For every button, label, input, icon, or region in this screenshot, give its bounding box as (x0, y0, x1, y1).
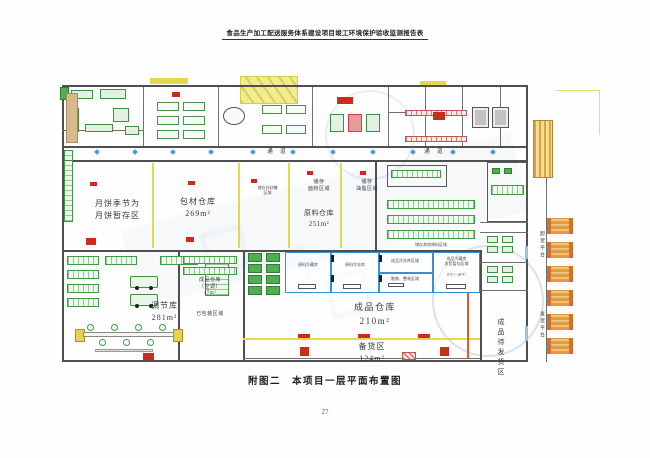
red-marker (337, 97, 353, 104)
report-header: 食品生产加工配送服务体系建设项目竣工环境保护验收监测报告表 (0, 22, 650, 40)
office-desk (286, 105, 306, 114)
wall (218, 87, 219, 146)
page-title: 食品生产加工配送服务体系建设项目竣工环境保护验收监测报告表 (222, 27, 427, 40)
cold-room-wall (432, 252, 434, 293)
office-desk (502, 246, 513, 253)
bench (446, 284, 466, 289)
elevator (472, 107, 489, 128)
platform-label-delivery: 发货平台 (534, 298, 544, 352)
red-marker (251, 179, 257, 183)
shelving-rack (64, 150, 73, 222)
machine (266, 286, 280, 295)
truck-icon (547, 290, 573, 306)
canopy-strip (150, 78, 188, 84)
equipment (492, 168, 500, 174)
worker-station (147, 339, 154, 346)
marked-wall-line (467, 293, 469, 359)
cold-room-wall (378, 272, 432, 274)
shelving-rack (67, 270, 99, 279)
office-desk (487, 246, 498, 253)
office-desk (183, 116, 205, 125)
red-marker (298, 334, 310, 338)
truck-icon (547, 338, 573, 354)
cold-room-label: 成品冷藏库 发货暂存区域 (435, 256, 478, 266)
bench (388, 283, 404, 287)
wall (480, 232, 528, 233)
worker-station (135, 324, 142, 331)
forklift-wheel (135, 286, 139, 290)
conveyor-belt (95, 349, 153, 352)
equipment (100, 89, 126, 99)
wall (243, 250, 245, 362)
shelving-rack (183, 256, 237, 264)
worker-station (99, 339, 106, 346)
office-desk (487, 266, 498, 273)
machine (266, 253, 280, 262)
cold-room-label: 原料冷冻库 (334, 262, 376, 267)
wall (62, 160, 528, 162)
machine (248, 286, 262, 295)
corridor-label: 通 道 (263, 148, 293, 156)
red-marker (300, 347, 309, 356)
shelving-rack (105, 256, 137, 265)
zone-label-sugar: 储存白砂糖 区域 (250, 185, 285, 195)
machine (366, 114, 380, 132)
wall (480, 290, 528, 291)
cold-room-door (331, 255, 334, 262)
office-desk (157, 116, 179, 125)
wall (480, 250, 482, 362)
truck-icon (547, 242, 573, 258)
red-marker (186, 237, 194, 242)
red-marker (440, 347, 449, 356)
zone-label-mooncake: 月饼季节为 月饼暂存区 (80, 198, 155, 222)
wall (312, 87, 313, 146)
zone-label-finished-ac: 成品仓库 （空调） 47m² (181, 278, 239, 298)
worker-station (159, 324, 166, 331)
shelving-rack (387, 215, 475, 224)
elevator (492, 107, 509, 128)
wall (143, 87, 144, 146)
machine (248, 264, 262, 273)
locker-row (405, 136, 467, 142)
office-desk (487, 276, 498, 283)
cold-room-label: 散装、整装区域 (381, 276, 429, 281)
red-marker (90, 182, 97, 186)
wall (480, 262, 528, 263)
floor-ramp (402, 352, 416, 360)
office-desk (183, 130, 205, 139)
office-desk (502, 276, 513, 283)
zone-label-finished: 成品仓库 210m² (340, 301, 410, 328)
zone-label-packing-material: 包材仓库 269m² (167, 196, 229, 220)
office-desk (262, 105, 282, 114)
shelving-rack (387, 200, 475, 209)
bench (298, 284, 316, 289)
machine (248, 275, 262, 284)
shelving-rack (183, 267, 237, 275)
red-marker (307, 171, 313, 175)
site-boundary-line (555, 90, 600, 135)
machine (266, 264, 280, 273)
forklift-wheel (149, 286, 153, 290)
cold-room-label: 成品冷冻库区域 (381, 258, 429, 263)
meeting-table (223, 107, 245, 125)
office-desk (487, 236, 498, 243)
shelving-rack (67, 256, 99, 265)
zone-divider-line (243, 338, 480, 340)
zone-divider-line (288, 163, 290, 248)
equipment (85, 124, 113, 132)
red-marker (86, 238, 96, 245)
truck-icon (547, 266, 573, 282)
office-desk (502, 236, 513, 243)
dock-ramp (533, 120, 553, 178)
office-desk (502, 266, 513, 273)
zone-label-oil: 储存 油脂区域 (348, 180, 386, 193)
packing-machine (173, 329, 183, 342)
zone-divider-line (238, 163, 240, 248)
zone-label-other-raw: 储存其他原料区域 (385, 242, 477, 247)
equipment (125, 126, 139, 135)
office-desk (183, 102, 205, 111)
floor-plan: 通 道 通 道 月饼季节为 月饼暂存区 包材仓库 269m² 储存白砂糖 区域 … (55, 50, 620, 375)
wall (62, 146, 528, 148)
shelving-rack (67, 298, 99, 307)
corridor-label: 通 道 (420, 148, 450, 156)
wall (375, 160, 377, 250)
machine (248, 253, 262, 262)
shelving-rack (391, 170, 441, 178)
worker-station (87, 324, 94, 331)
red-marker (172, 92, 180, 97)
figure-caption: 附图二 本项目一层平面布置图 (0, 373, 650, 387)
platform-label-unloading: 卸货平台 (534, 218, 544, 272)
dock-door (525, 326, 528, 341)
wall (388, 87, 389, 146)
office-desk (286, 125, 306, 134)
office-desk (157, 102, 179, 111)
equipment (113, 108, 129, 122)
cold-room-label: 原料冷藏库 (288, 262, 328, 267)
machine (266, 275, 280, 284)
red-marker (418, 334, 430, 338)
zone-divider-line (340, 163, 342, 248)
machine (348, 114, 362, 132)
shelving-rack (67, 284, 99, 293)
bench (343, 284, 361, 289)
worker-station (111, 324, 118, 331)
wall (480, 222, 528, 223)
zone-label-raw-material: 原料仓库 251m² (290, 208, 348, 229)
conveyor-belt (83, 332, 175, 337)
worker-station (123, 339, 130, 346)
red-marker (358, 334, 370, 338)
zone-label-packed: 已包装区域 (181, 312, 239, 319)
document-page: 食品生产加工配送服务体系建设项目竣工环境保护验收监测报告表 (0, 0, 650, 458)
stair-ramp (66, 93, 78, 143)
dock-door (525, 246, 528, 259)
office-desk (262, 125, 282, 134)
red-marker (143, 353, 154, 360)
shelving-rack (387, 230, 475, 239)
zone-label-flour: 储存 面粉区域 (300, 180, 338, 193)
truck-icon (547, 218, 573, 234)
shelving-rack (491, 185, 524, 195)
red-marker (188, 181, 195, 185)
red-marker (433, 112, 445, 120)
red-marker (360, 171, 366, 175)
cold-room-temp: 0℃~-18℃ (435, 272, 478, 277)
zone-label-stock-prep: 备货区 124m² (343, 341, 401, 365)
page-number: 27 (0, 408, 650, 416)
machine (330, 114, 344, 132)
equipment (504, 168, 512, 174)
cold-room-door (331, 275, 334, 282)
truck-icon (547, 314, 573, 330)
office-desk (157, 130, 179, 139)
